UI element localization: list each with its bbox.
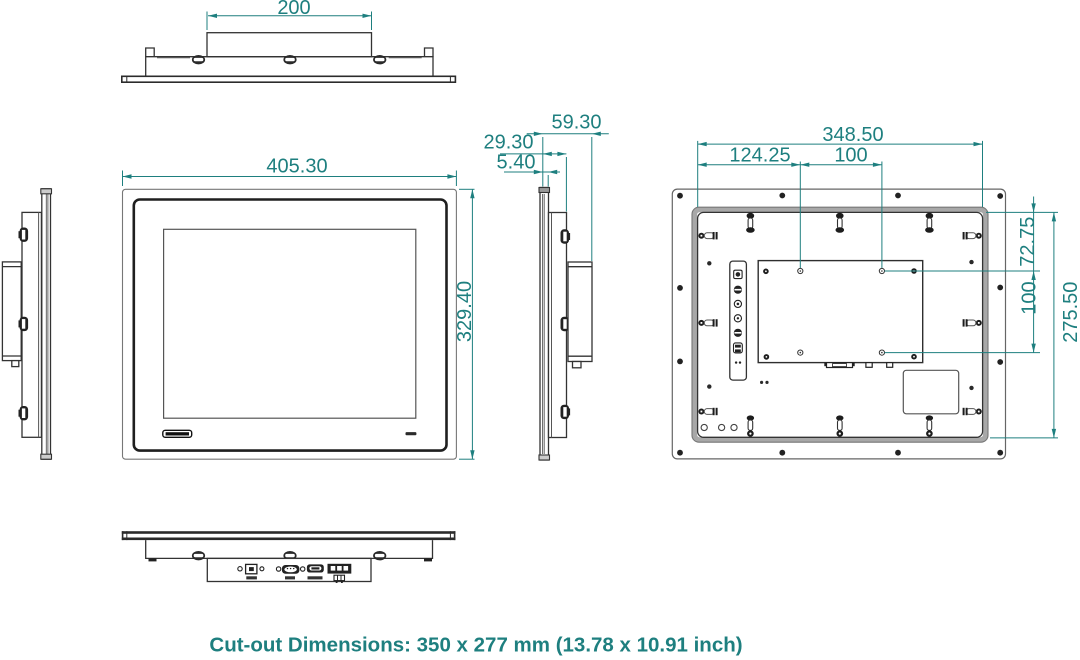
svg-text:329.40: 329.40: [454, 281, 476, 342]
svg-text:124.25: 124.25: [729, 144, 790, 166]
svg-text:100: 100: [834, 144, 867, 166]
svg-text:100: 100: [1019, 281, 1041, 314]
svg-text:405.30: 405.30: [266, 155, 327, 177]
svg-text:59.30: 59.30: [551, 112, 601, 134]
svg-text:5.40: 5.40: [497, 151, 536, 173]
svg-text:200: 200: [277, 0, 310, 19]
svg-text:348.50: 348.50: [822, 124, 883, 146]
svg-text:72.75: 72.75: [1017, 217, 1039, 267]
svg-text:275.50: 275.50: [1060, 282, 1080, 343]
svg-text:Cut-out Dimensions: 350 x 277: Cut-out Dimensions: 350 x 277 mm (13.78 …: [209, 634, 742, 657]
svg-text:29.30: 29.30: [483, 131, 533, 153]
